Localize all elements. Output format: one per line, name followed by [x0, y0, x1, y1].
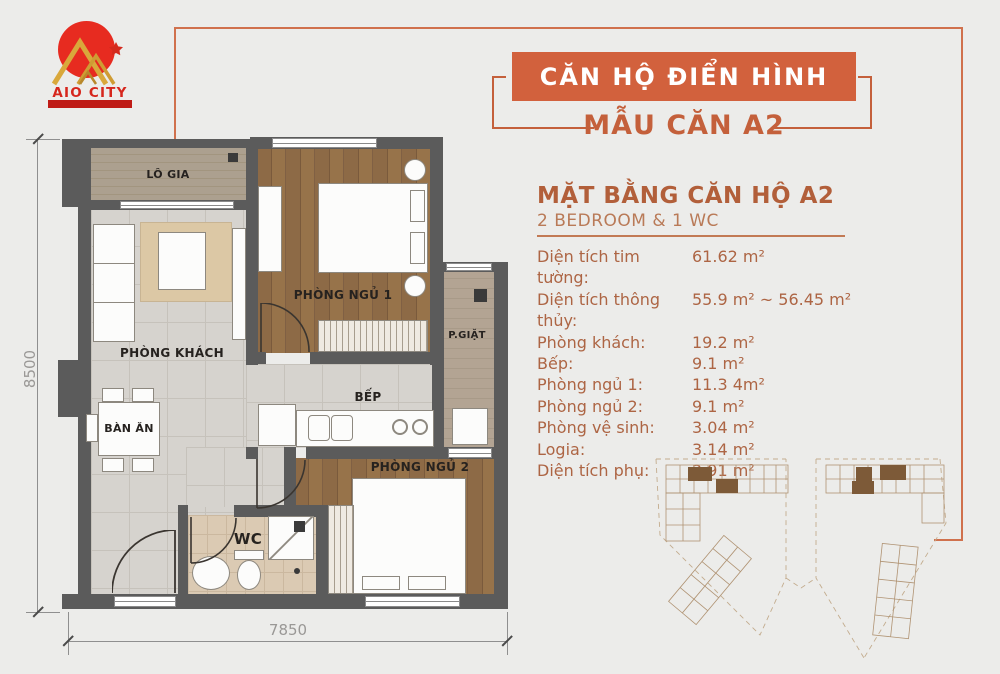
logo-text: AIO CITY — [46, 85, 134, 101]
dining-chair — [132, 458, 154, 472]
dim-line-horizontal — [68, 641, 508, 642]
room-label-dining: BÀN ĂN — [99, 403, 159, 455]
window-laundry — [446, 263, 492, 271]
room-label-laundry: P.GIẶT — [436, 330, 498, 341]
bedroom1-closet — [318, 320, 428, 352]
wall-segment — [74, 139, 258, 148]
spec-value: 61.62 m² — [692, 246, 867, 289]
spec-row: Phòng ngủ 2:9.1 m² — [537, 396, 867, 417]
frame-left-line — [174, 27, 176, 139]
spec-label: Bếp: — [537, 353, 692, 374]
dining-table: BÀN ĂN — [98, 402, 160, 456]
wall-segment — [246, 139, 258, 365]
room-label-wc: WC — [218, 530, 278, 548]
header-bracket-right — [870, 76, 872, 129]
kitchen-sink — [308, 415, 330, 441]
dim-height-label: 8500 — [21, 339, 39, 399]
spec-row: Diện tích tim tường:61.62 m² — [537, 246, 867, 289]
bedroom1-door — [260, 303, 310, 353]
bedroom1-nightstand — [404, 159, 426, 181]
spec-value: 55.9 m² ~ 56.45 m² — [692, 289, 867, 332]
tv-cabinet — [232, 228, 246, 340]
window-bedroom2 — [365, 596, 460, 607]
bedroom2-pillow — [362, 576, 400, 590]
wall-segment — [58, 360, 78, 417]
spec-label: Phòng ngủ 1: — [537, 374, 692, 395]
spec-value: 9.1 m² — [692, 353, 867, 374]
spec-row: Phòng ngủ 1:11.3 4m² — [537, 374, 867, 395]
window-logia-door — [120, 201, 234, 209]
window-bedroom1 — [272, 138, 377, 148]
dining-chair — [132, 388, 154, 402]
spec-value: 19.2 m² — [692, 332, 867, 353]
bedroom1-pillow — [410, 232, 425, 264]
site-plan-highlighted-units — [688, 465, 906, 494]
stove-burner — [412, 419, 428, 435]
header-bracket-left — [492, 76, 494, 129]
stove-burner — [392, 419, 408, 435]
dining-chair — [86, 414, 98, 442]
coffee-table — [158, 232, 206, 290]
spec-value: 9.1 m² — [692, 396, 867, 417]
header-bracket-left-stub — [492, 76, 506, 78]
dim-extension — [26, 612, 60, 613]
spec-label: Phòng ngủ 2: — [537, 396, 692, 417]
washing-machine — [452, 408, 488, 445]
bedroom1-pillow — [410, 190, 425, 222]
threshold-laundry — [448, 448, 492, 458]
info-title: MẶT BẰNG CĂN HỘ A2 — [537, 183, 834, 209]
room-label-bedroom1: PHÒNG NGỦ 1 — [268, 288, 418, 302]
unit-model-subtitle: MẪU CĂN A2 — [512, 110, 856, 141]
fridge — [258, 404, 296, 446]
logia-ac-unit — [228, 153, 238, 162]
header-bracket-right-stub — [858, 76, 872, 78]
dining-chair — [102, 388, 124, 402]
kitchen-sink — [331, 415, 353, 441]
wall-segment — [246, 447, 258, 459]
dim-width-label: 7850 — [238, 621, 338, 639]
spec-label: Phòng khách: — [537, 332, 692, 353]
info-divider — [537, 235, 845, 237]
spec-label: Diện tích tim tường: — [537, 246, 692, 289]
spec-row: Bếp:9.1 m² — [537, 353, 867, 374]
dim-extension — [26, 139, 60, 140]
wall-segment — [494, 262, 508, 603]
bedroom2-pillow — [408, 576, 446, 590]
entry-threshold — [114, 596, 176, 607]
brochure-page: AIO CITY CĂN HỘ ĐIỂN HÌNH MẪU CĂN A2 MẶT… — [0, 0, 1000, 674]
spec-label: Diện tích thông thủy: — [537, 289, 692, 332]
bedroom2-door — [256, 459, 306, 509]
dining-chair — [102, 458, 124, 472]
dim-extension — [68, 612, 69, 655]
entry-door — [112, 530, 177, 595]
toilet-tank — [234, 550, 264, 560]
logo-tagline-bar — [48, 100, 132, 108]
spec-row: Diện tích thông thủy:55.9 m² ~ 56.45 m² — [537, 289, 867, 332]
spec-row: Phòng khách:19.2 m² — [537, 332, 867, 353]
wall-segment — [178, 505, 188, 602]
room-label-logia: LÔ GIA — [98, 168, 238, 181]
frame-top-line — [174, 27, 963, 29]
header-banner: CĂN HỘ ĐIỂN HÌNH — [512, 52, 856, 101]
wall-segment — [310, 352, 443, 364]
info-subtitle: 2 BEDROOM & 1 WC — [537, 211, 719, 231]
wall-segment — [246, 352, 266, 364]
spec-label: Phòng vệ sinh: — [537, 417, 692, 438]
room-label-bedroom2: PHÒNG NGỦ 2 — [345, 460, 495, 474]
sofa — [93, 224, 135, 342]
spec-value: 3.04 m² — [692, 417, 867, 438]
bedroom1-wardrobe — [258, 186, 282, 272]
room-label-kitchen: BẾP — [333, 390, 403, 404]
wall-segment — [316, 515, 328, 595]
spec-value: 11.3 4m² — [692, 374, 867, 395]
site-key-plan — [640, 445, 995, 674]
shower-drain — [294, 521, 305, 532]
bedroom2-wardrobe — [328, 505, 354, 594]
logo-mountain-icon — [50, 34, 130, 86]
dim-extension — [507, 612, 508, 655]
room-label-living: PHÒNG KHÁCH — [97, 346, 247, 360]
floor-drain — [294, 568, 300, 574]
laundry-cabinet — [474, 289, 487, 302]
toilet-bowl — [237, 560, 261, 590]
wall-segment — [62, 139, 78, 207]
spec-row: Phòng vệ sinh:3.04 m² — [537, 417, 867, 438]
